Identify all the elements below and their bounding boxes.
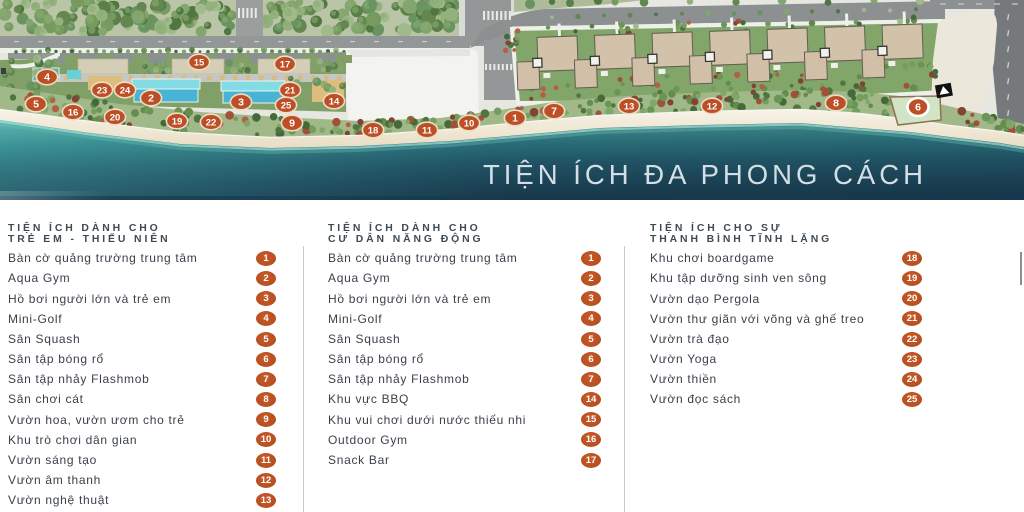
svg-text:18: 18: [368, 125, 379, 136]
svg-text:12: 12: [707, 101, 718, 112]
svg-text:19: 19: [172, 116, 183, 127]
svg-text:15: 15: [194, 57, 205, 68]
svg-text:16: 16: [68, 107, 79, 118]
svg-text:3: 3: [238, 96, 244, 108]
svg-text:7: 7: [551, 105, 557, 117]
svg-text:21: 21: [285, 85, 296, 96]
svg-text:20: 20: [110, 112, 121, 123]
svg-text:6: 6: [915, 101, 921, 113]
svg-text:14: 14: [329, 96, 340, 107]
svg-text:4: 4: [44, 71, 50, 83]
svg-text:5: 5: [33, 98, 39, 110]
svg-text:23: 23: [97, 85, 108, 96]
svg-text:1: 1: [512, 112, 518, 124]
svg-text:25: 25: [281, 100, 292, 111]
svg-text:22: 22: [206, 117, 217, 128]
svg-text:11: 11: [422, 125, 433, 136]
svg-text:24: 24: [120, 85, 131, 96]
svg-text:TIỆN ÍCH ĐA PHONG CÁCH: TIỆN ÍCH ĐA PHONG CÁCH: [483, 159, 927, 190]
svg-text:10: 10: [464, 118, 475, 129]
svg-text:8: 8: [833, 97, 839, 109]
svg-text:2: 2: [148, 92, 154, 104]
svg-text:17: 17: [280, 59, 291, 70]
svg-text:13: 13: [624, 101, 635, 112]
svg-text:9: 9: [289, 117, 295, 129]
